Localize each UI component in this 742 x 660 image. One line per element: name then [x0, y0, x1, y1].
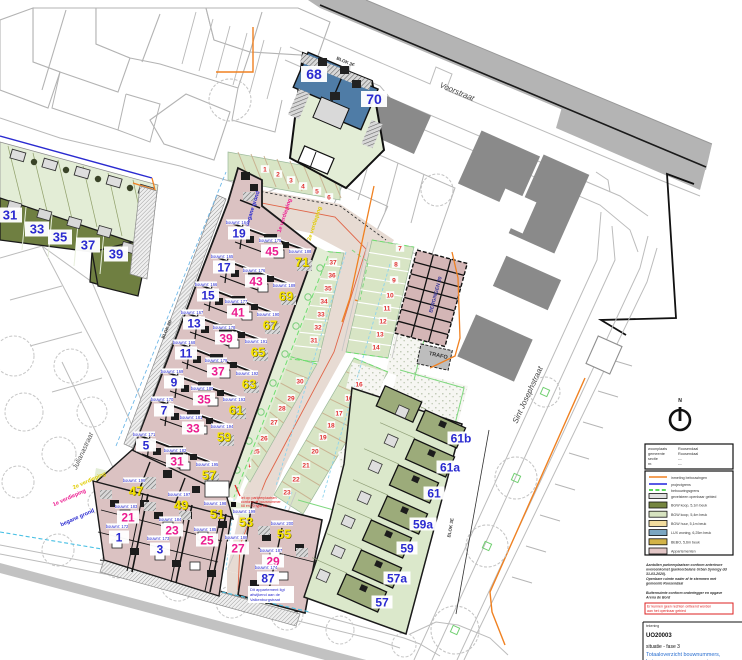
svg-text:N: N: [678, 398, 682, 404]
svg-text:34: 34: [320, 298, 328, 305]
svg-text:bouwnr: 186: bouwnr: 186: [225, 535, 248, 540]
svg-text:Appartementen: Appartementen: [671, 550, 696, 554]
svg-text:70: 70: [366, 91, 382, 107]
svg-text:Er kunnen geen rechten ontleen: Er kunnen geen rechten ontleend worden: [647, 605, 711, 609]
svg-text:2: 2: [276, 171, 280, 178]
svg-text:bouwnr: 195: bouwnr: 195: [196, 462, 219, 467]
svg-text:11: 11: [180, 346, 193, 360]
svg-text:bouwnr: 171: bouwnr: 171: [133, 432, 156, 437]
svg-text:projectgrens: projectgrens: [671, 483, 691, 487]
svg-text:3: 3: [289, 177, 293, 184]
svg-text:bouwnr: 187: bouwnr: 187: [260, 548, 283, 553]
svg-text:bouwnr: 179: bouwnr: 179: [205, 358, 228, 363]
svg-text:15: 15: [201, 288, 215, 302]
svg-text:14: 14: [372, 344, 380, 351]
svg-text:33: 33: [186, 421, 200, 435]
svg-text:35: 35: [324, 285, 332, 292]
svg-text:12: 12: [379, 318, 387, 325]
svg-text:67: 67: [263, 318, 277, 333]
svg-text:UO20003: UO20003: [646, 633, 672, 639]
svg-text:25: 25: [200, 533, 214, 547]
svg-text:61: 61: [229, 403, 243, 418]
svg-text:bouwnr: 180: bouwnr: 180: [191, 386, 214, 391]
svg-text:bouwnr: 170: bouwnr: 170: [151, 397, 174, 402]
svg-text:Roosendaal: Roosendaal: [678, 452, 698, 456]
svg-text:bouwnr: 194: bouwnr: 194: [211, 424, 234, 429]
svg-text:1: 1: [263, 166, 267, 173]
svg-text:41: 41: [231, 305, 245, 319]
svg-text:bouwnr: 191: bouwnr: 191: [245, 339, 268, 344]
svg-text:71: 71: [295, 255, 309, 270]
svg-text:LUX woning, 6,25m beuk: LUX woning, 6,25m beuk: [671, 531, 711, 535]
svg-text:61a: 61a: [440, 460, 460, 474]
svg-text:31: 31: [170, 454, 184, 468]
svg-text:bouwnr: 178: bouwnr: 178: [213, 325, 236, 330]
svg-text:18: 18: [327, 422, 335, 429]
svg-text:7: 7: [161, 403, 168, 417]
svg-text:28: 28: [278, 405, 286, 412]
svg-text:59: 59: [400, 541, 414, 555]
svg-text:27: 27: [270, 419, 278, 426]
svg-text:situatie - fase 3: situatie - fase 3: [646, 644, 680, 650]
svg-text:51: 51: [210, 507, 224, 522]
svg-text:overeenkomst (parkeerbalans Ur: overeenkomst (parkeerbalans Urban Synerg…: [646, 568, 728, 572]
svg-text:4: 4: [301, 183, 305, 190]
svg-text:22: 22: [292, 476, 300, 483]
svg-text:bouwnr: 174: bouwnr: 174: [255, 565, 278, 570]
svg-text:bouwnr: 190: bouwnr: 190: [257, 312, 280, 317]
svg-text:3: 3: [157, 542, 164, 556]
svg-text:69: 69: [279, 289, 293, 304]
svg-text:37: 37: [211, 364, 225, 378]
svg-text:5: 5: [143, 438, 150, 452]
svg-text:45: 45: [265, 244, 279, 258]
svg-text:17: 17: [335, 410, 343, 417]
svg-text:Valkenburgstraat: Valkenburgstraat: [250, 597, 281, 602]
svg-text:49: 49: [174, 498, 188, 513]
svg-text:11: 11: [384, 305, 391, 312]
svg-text:5: 5: [315, 188, 319, 195]
svg-text:19: 19: [232, 226, 246, 240]
svg-text:BGW koop, 5,4m beuk: BGW koop, 5,4m beuk: [671, 513, 707, 517]
svg-text:bouwnr: 172: bouwnr: 172: [106, 524, 129, 529]
svg-text:bouwnr: 200: bouwnr: 200: [271, 521, 294, 526]
svg-text:gemeente: gemeente: [648, 452, 665, 456]
svg-text:bouwnr: 185: bouwnr: 185: [194, 527, 217, 532]
svg-text:57: 57: [202, 468, 216, 483]
svg-text:43: 43: [249, 274, 263, 288]
svg-text:bouwnr: 188: bouwnr: 188: [289, 249, 312, 254]
svg-text:8: 8: [394, 261, 398, 268]
svg-text:bouwnr: 198: bouwnr: 198: [204, 501, 227, 506]
svg-text:53: 53: [239, 515, 253, 530]
svg-text:BEBO, 5,6m beuk: BEBO, 5,6m beuk: [671, 540, 700, 544]
svg-text:29: 29: [287, 395, 295, 402]
svg-text:17: 17: [217, 260, 231, 274]
svg-text:39: 39: [109, 247, 123, 262]
svg-text:bouwnr: 164: bouwnr: 164: [226, 220, 249, 225]
svg-text:59a: 59a: [413, 517, 433, 531]
svg-text:bouwnr: 165: bouwnr: 165: [211, 254, 234, 259]
svg-text:65: 65: [251, 345, 265, 360]
svg-text:bouwnr: 168: bouwnr: 168: [173, 340, 196, 345]
svg-text:27: 27: [231, 541, 245, 555]
svg-text:32: 32: [314, 324, 322, 331]
svg-text:31: 31: [3, 208, 17, 223]
svg-text:bouwnr: 199: bouwnr: 199: [233, 509, 256, 514]
svg-text:bouwnr: 169: bouwnr: 169: [161, 369, 184, 374]
svg-text:BGW koop, 5,1m beuk: BGW koop, 5,1m beuk: [671, 504, 707, 508]
svg-text:47: 47: [129, 484, 143, 499]
svg-text:Totaaloverzicht bouwnummers,: Totaaloverzicht bouwnummers,: [646, 652, 721, 658]
svg-text:bouwnr: 175: bouwnr: 175: [259, 238, 282, 243]
svg-text:21: 21: [121, 510, 135, 524]
svg-text:33: 33: [30, 222, 44, 237]
svg-text:bouwnr: 182: bouwnr: 182: [164, 448, 187, 453]
svg-text:30: 30: [296, 378, 304, 385]
svg-text:68: 68: [306, 66, 322, 82]
svg-text:26: 26: [260, 435, 268, 442]
svg-text:bouwnr: 173: bouwnr: 173: [147, 536, 170, 541]
svg-text:20: 20: [311, 448, 319, 455]
svg-text:63: 63: [242, 377, 256, 392]
svg-text:bouwnr: 192: bouwnr: 192: [236, 371, 259, 376]
svg-text:37: 37: [81, 238, 95, 253]
svg-text:BGW huur, 5,1m beuk: BGW huur, 5,1m beuk: [671, 522, 707, 526]
svg-text:bouwnr: 197: bouwnr: 197: [168, 492, 191, 497]
svg-text:57: 57: [375, 595, 389, 609]
svg-text:37: 37: [329, 259, 337, 266]
svg-text:bouwnr: 166: bouwnr: 166: [195, 282, 218, 287]
svg-text:bebouwingsgrens: bebouwingsgrens: [671, 489, 699, 493]
svg-text:33: 33: [317, 311, 325, 318]
svg-text:55: 55: [277, 527, 291, 542]
svg-text:woonplaats: woonplaats: [648, 447, 667, 451]
svg-text:19: 19: [319, 434, 327, 441]
svg-text:nr.: nr.: [648, 462, 652, 466]
svg-text:9: 9: [392, 277, 396, 284]
svg-text:7: 7: [398, 245, 402, 252]
svg-text:gemeente Roosendaal: gemeente Roosendaal: [645, 581, 684, 585]
svg-text:sectie: sectie: [648, 457, 658, 461]
svg-text:31-03-2020).: 31-03-2020).: [646, 572, 666, 576]
svg-text:23: 23: [283, 489, 291, 496]
svg-text:bouwnr: 181: bouwnr: 181: [180, 415, 203, 420]
svg-text:tekening: tekening: [646, 624, 659, 628]
svg-text:21: 21: [302, 462, 310, 469]
svg-text:bouwnr: 196: bouwnr: 196: [123, 478, 146, 483]
svg-text:57a: 57a: [387, 571, 407, 585]
svg-text:35: 35: [53, 230, 67, 245]
svg-text:bouwnr: 193: bouwnr: 193: [223, 397, 246, 402]
svg-text:87: 87: [261, 571, 275, 585]
svg-text:59: 59: [217, 430, 231, 445]
svg-text:gevelsteen openbaar gebied: gevelsteen openbaar gebied: [671, 495, 716, 499]
svg-text:Openbare ruimte nader af te st: Openbare ruimte nader af te stemmen met: [646, 577, 717, 581]
svg-text:bouwnr: 183: bouwnr: 183: [115, 504, 138, 509]
svg-text:bouwnr: 167: bouwnr: 167: [181, 310, 204, 315]
svg-text:6: 6: [327, 194, 331, 201]
svg-text:9: 9: [171, 375, 178, 389]
svg-text:35: 35: [197, 392, 211, 406]
svg-text:aan het openbaar gebied: aan het openbaar gebied: [647, 609, 686, 613]
svg-text:bouwnr: 177: bouwnr: 177: [225, 299, 248, 304]
svg-text:39: 39: [219, 331, 233, 345]
svg-text:61b: 61b: [451, 431, 472, 445]
svg-text:61: 61: [427, 486, 441, 500]
svg-text:Aantallen parkeerplaatsen conf: Aantallen parkeerplaatsen conform anteri…: [645, 563, 722, 567]
svg-text:68 en 70 type B2: 68 en 70 type B2: [241, 504, 268, 508]
svg-text:13: 13: [376, 331, 384, 338]
svg-text:bouwnr: 176: bouwnr: 176: [243, 268, 266, 273]
svg-text:Buitenruimte conform ondertegg: Buitenruimte conform ondertegger en opga…: [646, 591, 722, 595]
svg-text:inmeting bebouwingen: inmeting bebouwingen: [671, 476, 707, 480]
svg-text:10: 10: [386, 292, 394, 299]
svg-text:31: 31: [310, 337, 318, 344]
svg-text:Roosendaal: Roosendaal: [678, 447, 698, 451]
svg-text:16: 16: [355, 381, 363, 388]
svg-text:13: 13: [187, 316, 201, 330]
svg-text:bouwnr: 184: bouwnr: 184: [159, 517, 182, 522]
svg-text:36: 36: [328, 272, 336, 279]
svg-text:Arena de Bord: Arena de Bord: [645, 596, 671, 600]
svg-text:1: 1: [116, 530, 123, 544]
svg-text:bouwnr: 189: bouwnr: 189: [273, 283, 296, 288]
